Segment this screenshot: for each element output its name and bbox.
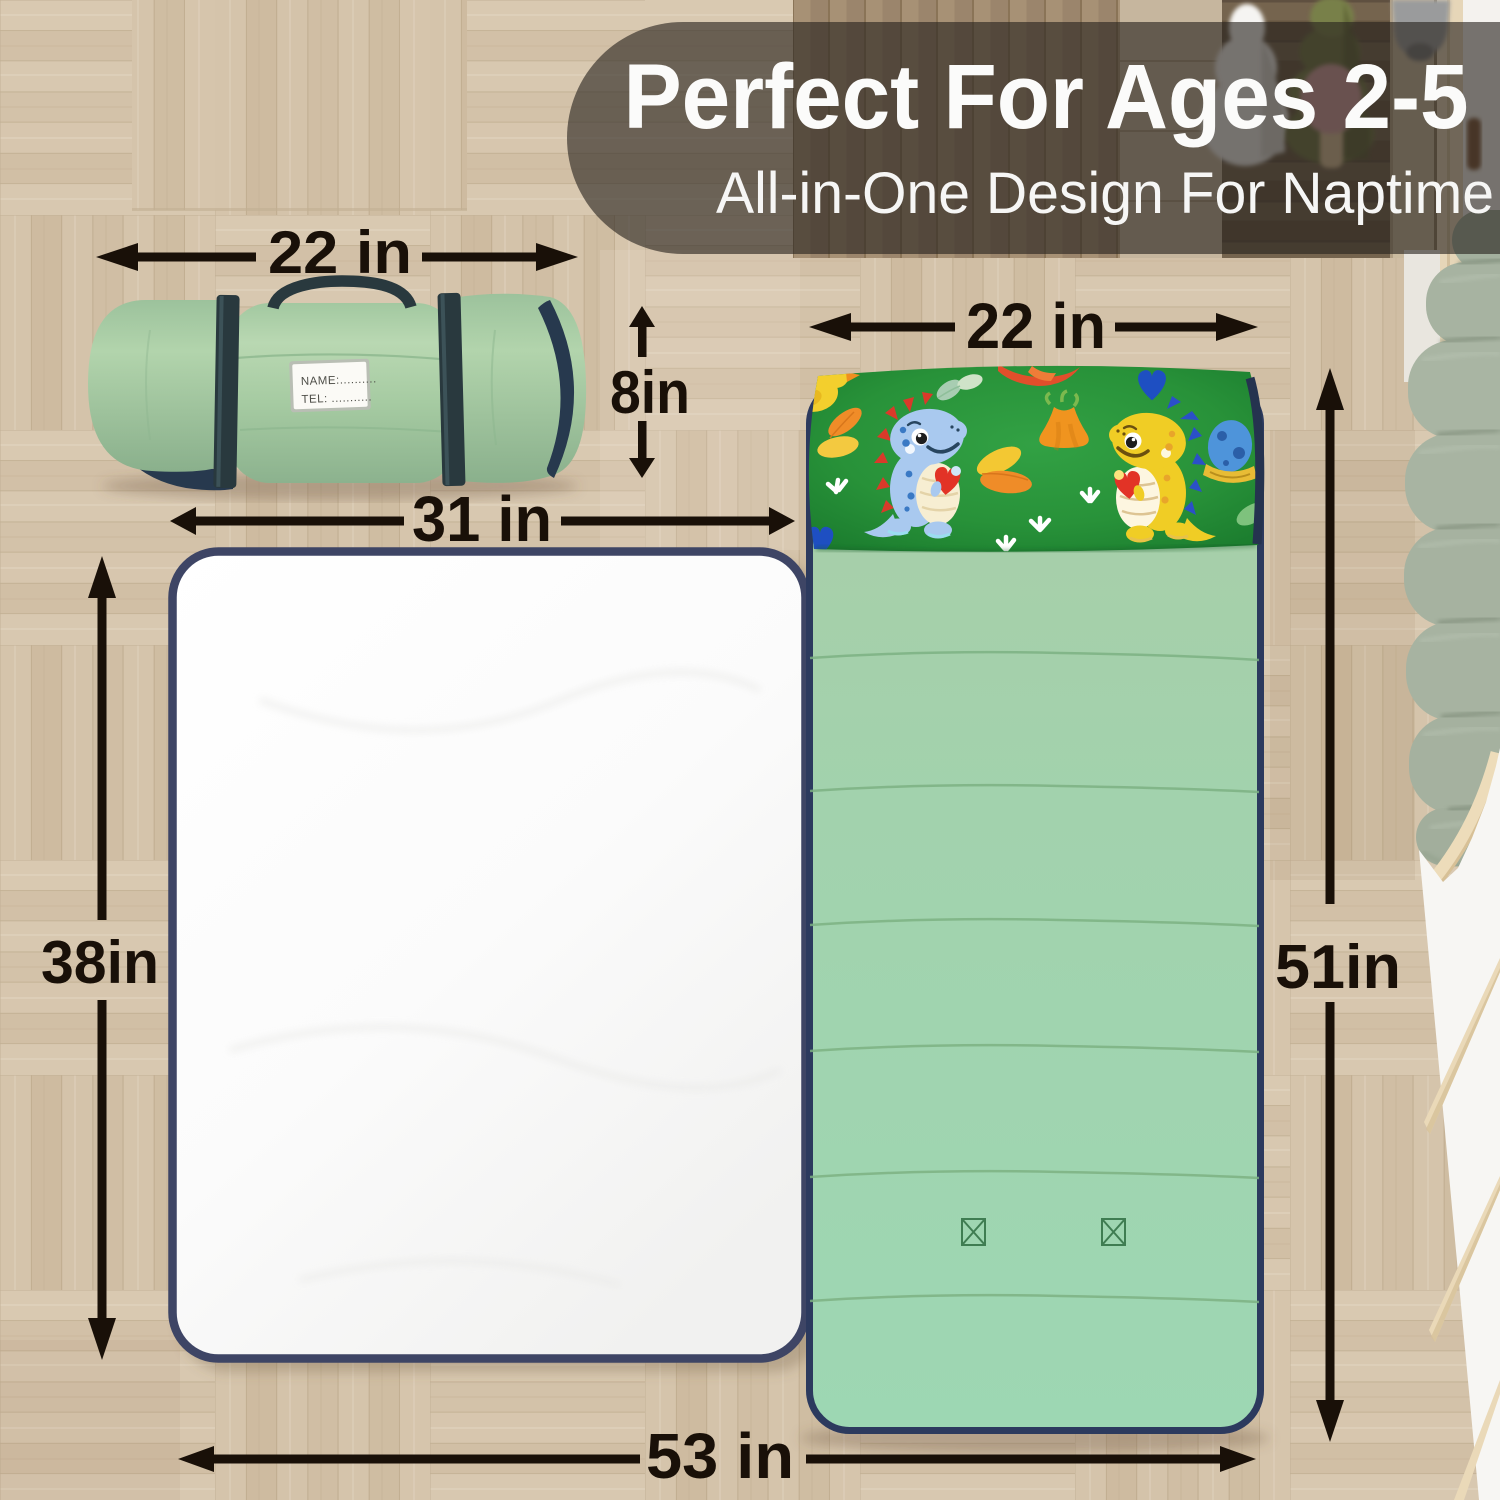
svg-text:22 in: 22 in xyxy=(268,219,412,286)
svg-text:8in: 8in xyxy=(610,359,690,426)
svg-text:All-in-One Design For Naptime: All-in-One Design For Naptime xyxy=(716,161,1494,226)
svg-text:53 in: 53 in xyxy=(646,1420,794,1492)
svg-text:38in: 38in xyxy=(41,929,159,996)
svg-text:Perfect For Ages 2-5: Perfect For Ages 2-5 xyxy=(624,46,1469,148)
svg-text:TEL: ...........: TEL: ........... xyxy=(301,392,372,406)
svg-text:31 in: 31 in xyxy=(412,483,552,555)
svg-text:22 in: 22 in xyxy=(966,290,1106,362)
svg-text:51in: 51in xyxy=(1275,933,1401,1002)
